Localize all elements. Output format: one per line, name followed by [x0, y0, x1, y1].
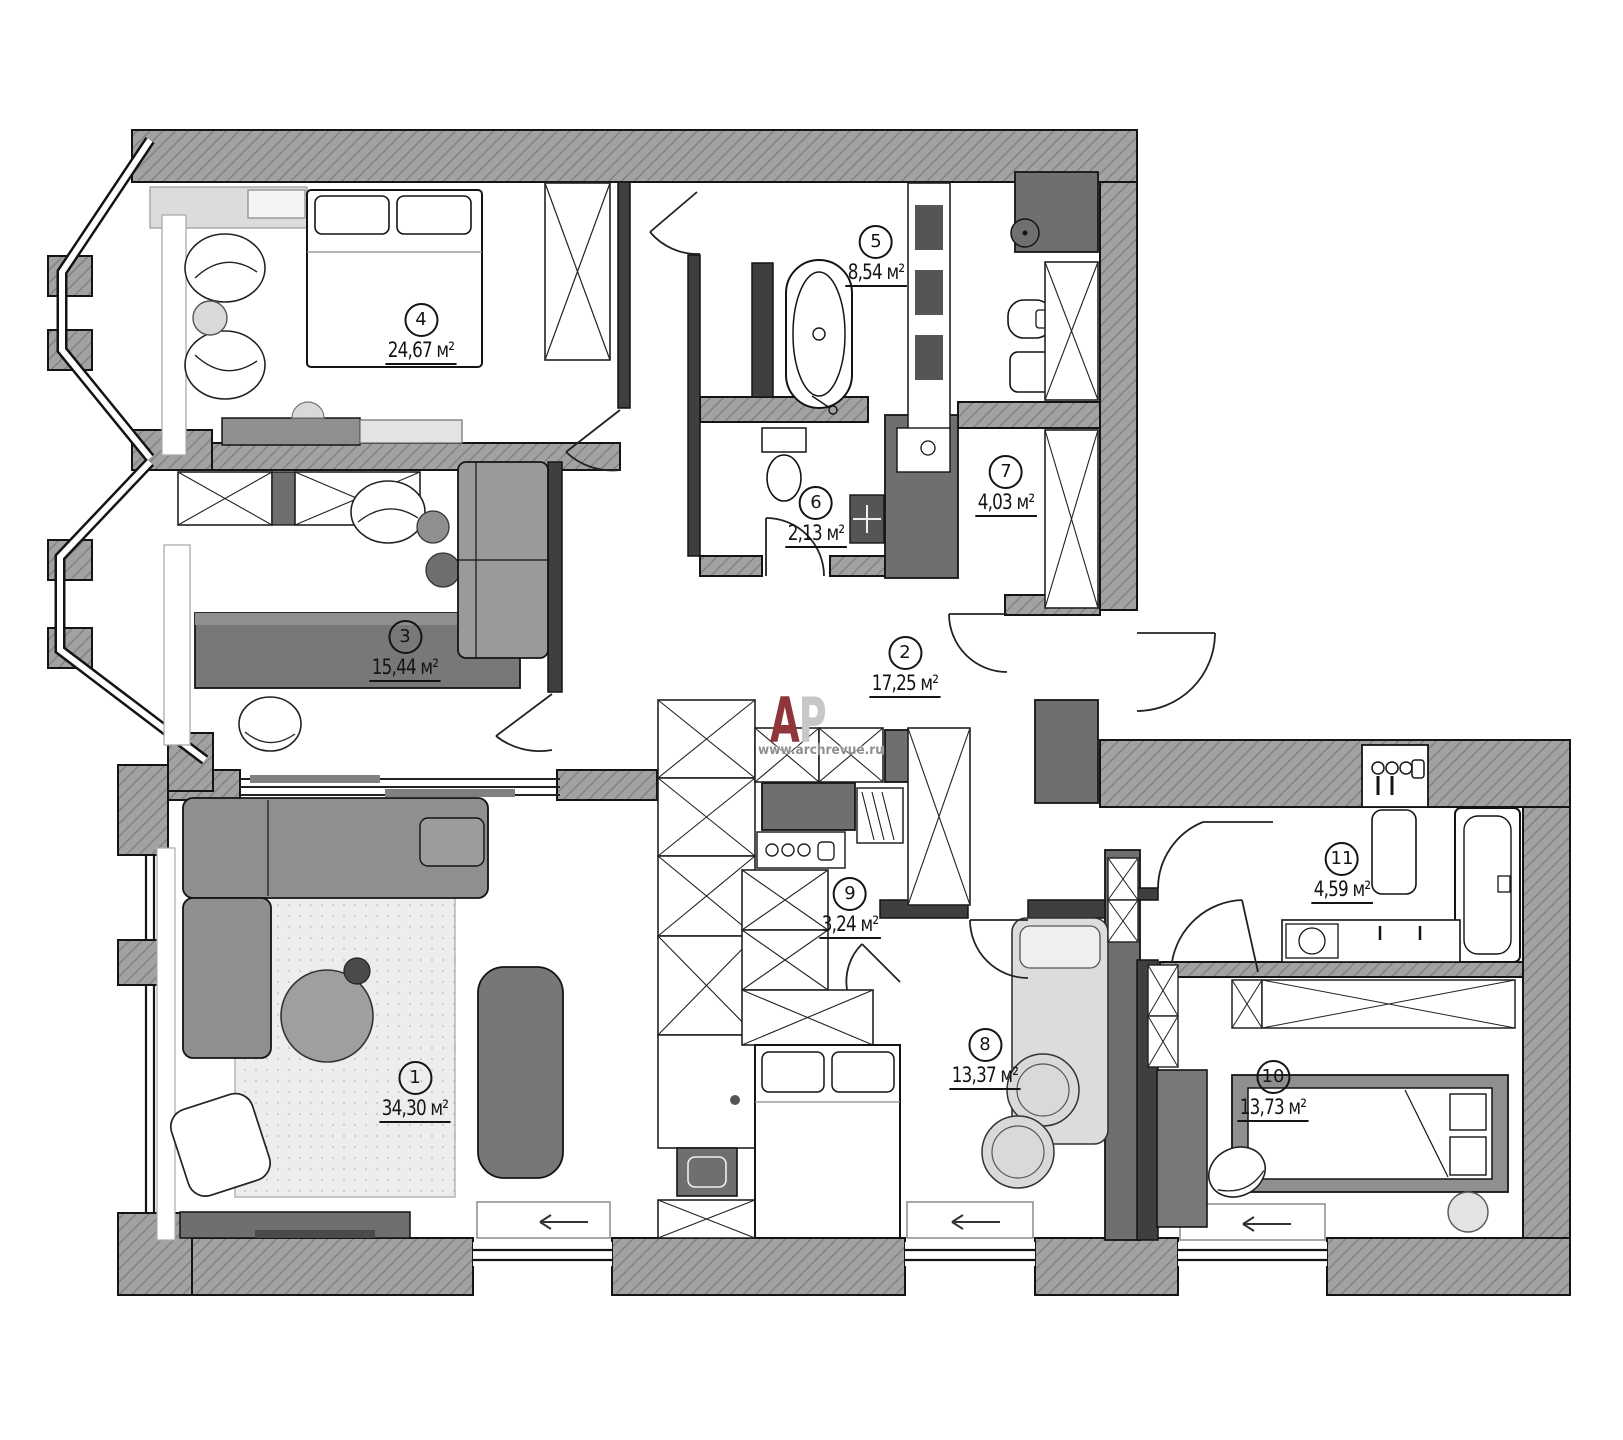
door-room7: [949, 614, 1007, 672]
room-label-1: 1 34,30 м²: [370, 1061, 459, 1123]
room-area: 34,30 м²: [379, 1096, 450, 1123]
sofa-left: [183, 898, 271, 1058]
dresser-light: [360, 420, 462, 443]
room-number: 11: [1325, 842, 1359, 876]
pillow-8b: [832, 1052, 894, 1092]
room-area: 13,73 м²: [1237, 1095, 1308, 1122]
door-room11: [1158, 822, 1273, 888]
room-area: 4,03 м²: [975, 490, 1036, 517]
room-number: 7: [989, 455, 1023, 489]
cabinet-door-3: [915, 335, 943, 380]
room-label-9: 9 3,24 м²: [812, 877, 889, 939]
room-area: 24,67 м²: [385, 338, 456, 365]
wall-corridor-room56: [688, 255, 700, 556]
kitchen-sink: [677, 1148, 737, 1196]
daybed-pillow: [1020, 926, 1100, 968]
window-left-living-1: [146, 855, 154, 940]
wall-room11-west-pier: [1137, 888, 1158, 900]
room-label-2: 2 17,25 м²: [860, 636, 949, 698]
room-number: 9: [833, 877, 867, 911]
room-label-8: 8 13,37 м²: [940, 1028, 1029, 1090]
floor-plan-page: 1 34,30 м² 2 17,25 м² 3 15,44 м² 4 24,67…: [0, 0, 1623, 1440]
counter: [658, 1035, 755, 1148]
armchair-2: [185, 331, 265, 399]
left-pier-1: [118, 765, 168, 855]
table-lamp: [292, 402, 324, 418]
room-number: 5: [859, 225, 893, 259]
window-bottom-1: [473, 1242, 612, 1266]
bay1-frame-outer: [62, 140, 150, 458]
pouf-2: [426, 553, 460, 587]
small-table: [344, 958, 370, 984]
room-label-10: 10 13,73 м²: [1228, 1060, 1317, 1122]
room-number: 4: [404, 303, 438, 337]
pouf-1: [417, 511, 449, 543]
wall-bottom-2: [612, 1238, 905, 1295]
door-room9: [846, 944, 900, 990]
side-table: [193, 301, 227, 335]
lounge-chair-room3: [351, 481, 425, 543]
wardrobe3-spacer: [272, 472, 295, 525]
wall-bathtub-nook: [752, 263, 773, 397]
wall-extension-top: [1100, 740, 1570, 807]
room-label-7: 7 4,03 м²: [968, 455, 1045, 517]
tv: [255, 1230, 375, 1238]
window-strip-room1: [157, 848, 175, 1240]
wall-room1-room3-divider-b: [557, 770, 657, 800]
duct-shaft-hall: [1035, 700, 1098, 803]
console-table: [478, 967, 563, 1178]
window-seat-room3: [164, 545, 190, 745]
window-bottom-3: [1178, 1242, 1327, 1266]
wall-room6-south-b: [830, 556, 885, 576]
room-area: 8,54 м²: [845, 260, 906, 287]
wall-right-lower: [1523, 807, 1570, 1295]
pouf-room10: [1448, 1192, 1488, 1232]
watermark: АР www.archrevue.ru: [770, 690, 898, 758]
sill-box-2: [907, 1202, 1033, 1238]
watermark-url: www.archrevue.ru: [758, 744, 884, 758]
window-seat-room4: [162, 215, 186, 455]
bench-top: [248, 190, 305, 218]
wall-bottom-1: [150, 1238, 473, 1295]
room-number: 6: [799, 486, 833, 520]
cistern: [762, 428, 806, 452]
pillow-right: [397, 196, 471, 234]
sofa-cushion: [420, 818, 484, 866]
wall-room6-south-a: [700, 556, 762, 576]
doors: [496, 192, 1273, 990]
wall-bottom-4: [1327, 1238, 1570, 1295]
pillow-8a: [762, 1052, 824, 1092]
room-number: 1: [398, 1061, 432, 1095]
cabinet-door-1: [915, 205, 943, 250]
armchair-1: [185, 234, 265, 302]
room3-furniture: [164, 462, 548, 751]
faucet: [730, 1095, 740, 1105]
duct-shaft-room9: [762, 783, 855, 830]
room-area: 4,59 м²: [1311, 877, 1372, 904]
room-label-5: 5 8,54 м²: [838, 225, 915, 287]
wall-room5-room6-divider: [700, 397, 868, 422]
room-label-4: 4 24,67 м²: [376, 303, 465, 365]
room-number: 2: [888, 636, 922, 670]
pillow-10b: [1450, 1137, 1486, 1175]
niche-sink-extension: [1362, 745, 1428, 807]
wall-right-upper: [1100, 182, 1137, 610]
washer: [1286, 924, 1338, 958]
room-area: 3,24 м²: [819, 912, 880, 939]
door-hall-corridor: [1137, 633, 1215, 711]
wall-top: [132, 130, 1137, 182]
pillow-left: [315, 196, 389, 234]
desk-room10: [1157, 1070, 1207, 1227]
room-number: 8: [968, 1028, 1002, 1062]
room1-furniture: [157, 775, 563, 1240]
room-area: 2,13 м²: [785, 521, 846, 548]
wall-room11-south: [1160, 962, 1523, 977]
room-label-11: 11 4,59 м²: [1304, 842, 1381, 904]
room-label-6: 6 2,13 м²: [778, 486, 855, 548]
room-area: 15,44 м²: [369, 655, 440, 682]
wall-bottom-3: [1035, 1238, 1178, 1295]
wall-room3-east: [548, 462, 562, 692]
wall-room5-room7-divider: [958, 402, 1100, 428]
window-left-living-2: [146, 985, 154, 1213]
room-number: 3: [388, 620, 422, 654]
door-room5: [650, 192, 700, 254]
room10-furniture: [1148, 965, 1515, 1232]
window-bottom-2: [905, 1242, 1035, 1266]
wall-room8-north-b: [1028, 900, 1105, 918]
kitchen: [658, 700, 755, 1238]
sliding-panel-1: [250, 775, 380, 783]
room-label-3: 3 15,44 м²: [360, 620, 449, 682]
room-area: 13,37 м²: [949, 1063, 1020, 1090]
door-room3: [496, 694, 552, 751]
pillow-10a: [1450, 1094, 1486, 1130]
cabinet-door-2: [915, 270, 943, 315]
round-chair-2: [982, 1116, 1054, 1188]
wall-room4-east: [618, 182, 630, 408]
clothes-rail: [857, 788, 903, 843]
dresser-dark: [222, 418, 360, 445]
sliding-panel-2: [385, 789, 515, 797]
vanity-room9: [757, 832, 845, 868]
shaft-door: [897, 428, 950, 472]
room-number: 10: [1256, 1060, 1290, 1094]
